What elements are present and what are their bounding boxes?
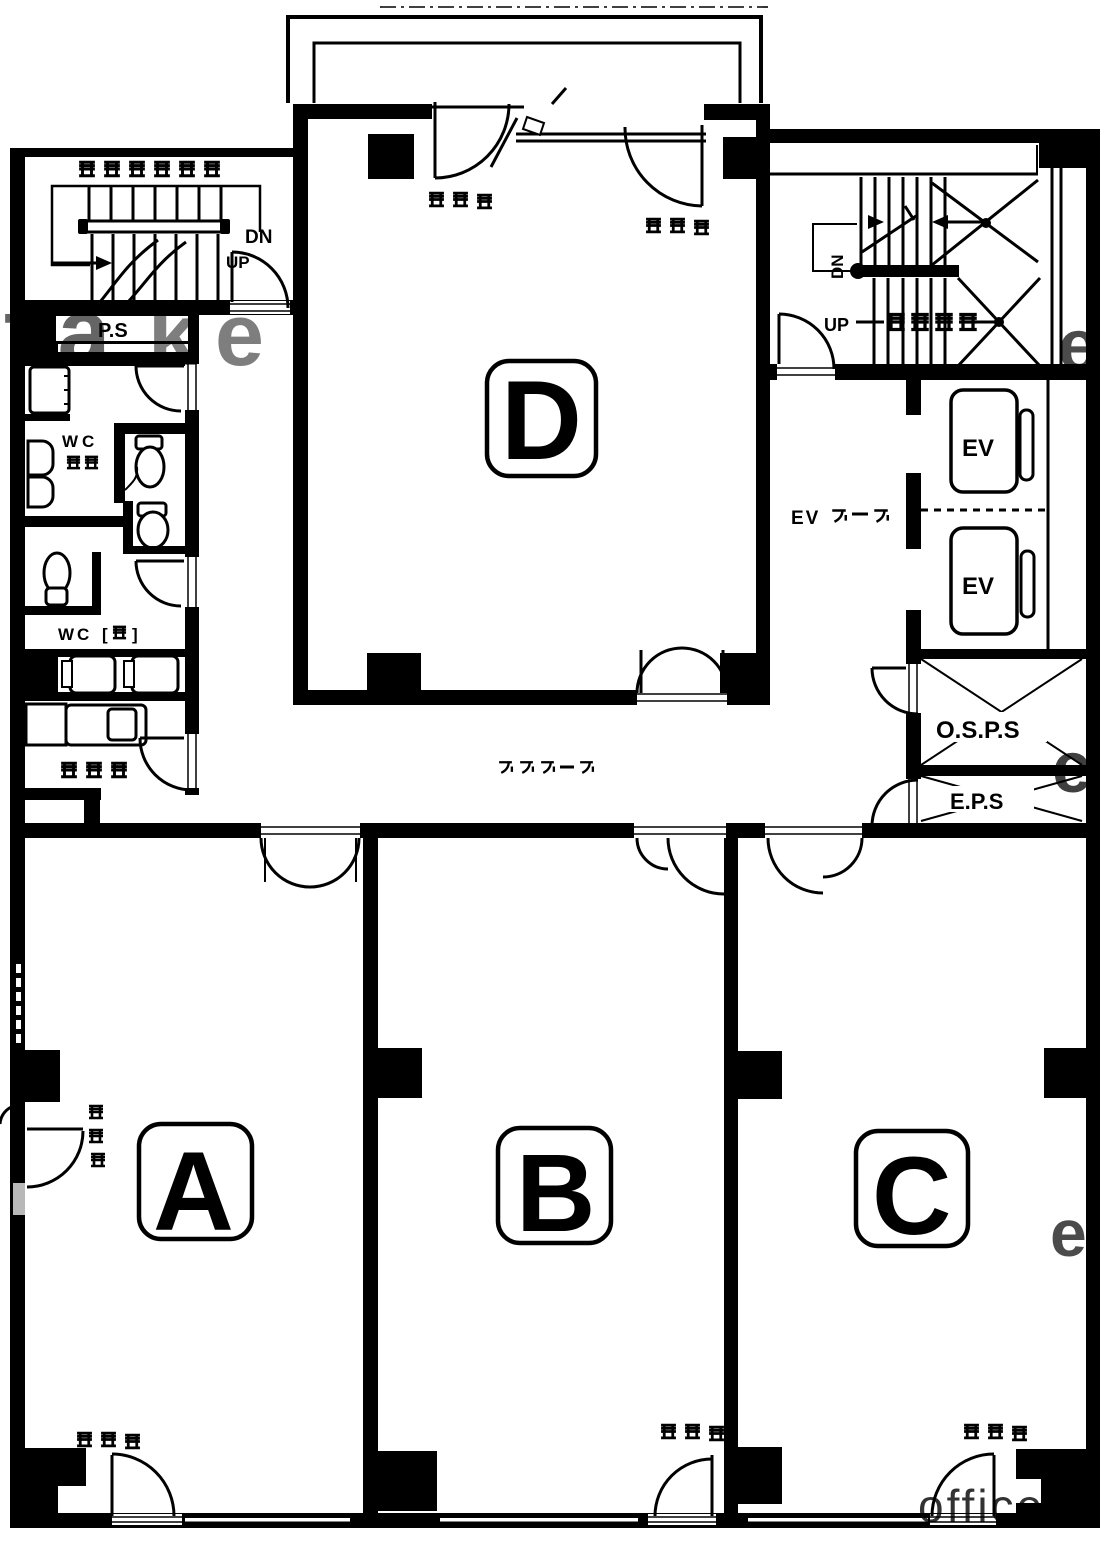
svg-text:e: e (1050, 1196, 1087, 1270)
svg-text:WC: WC (62, 432, 98, 451)
svg-text:EV: EV (791, 508, 820, 529)
svg-text:B: B (516, 1132, 595, 1255)
svg-text:D: D (501, 358, 582, 483)
svg-text:UP: UP (226, 253, 250, 272)
svg-text:A: A (153, 1129, 234, 1254)
svg-text:office: office (918, 1480, 1045, 1532)
svg-text:E.P.S: E.P.S (950, 789, 1003, 814)
svg-text:O.S.P.S: O.S.P.S (936, 717, 1020, 744)
svg-text:DN: DN (828, 254, 847, 279)
svg-text:ke: ke (148, 285, 282, 384)
svg-text:]: ] (132, 625, 138, 644)
svg-text:e: e (1058, 306, 1098, 386)
svg-text:EV: EV (962, 573, 994, 600)
svg-text:[: [ (102, 625, 108, 644)
svg-text:e: e (1052, 728, 1092, 808)
svg-text:WC: WC (58, 625, 92, 644)
svg-text:ta: ta (4, 279, 132, 385)
svg-text:UP: UP (824, 315, 849, 335)
svg-text:DN: DN (245, 227, 272, 248)
svg-text:C: C (872, 1135, 951, 1258)
svg-text:EV: EV (962, 435, 994, 462)
